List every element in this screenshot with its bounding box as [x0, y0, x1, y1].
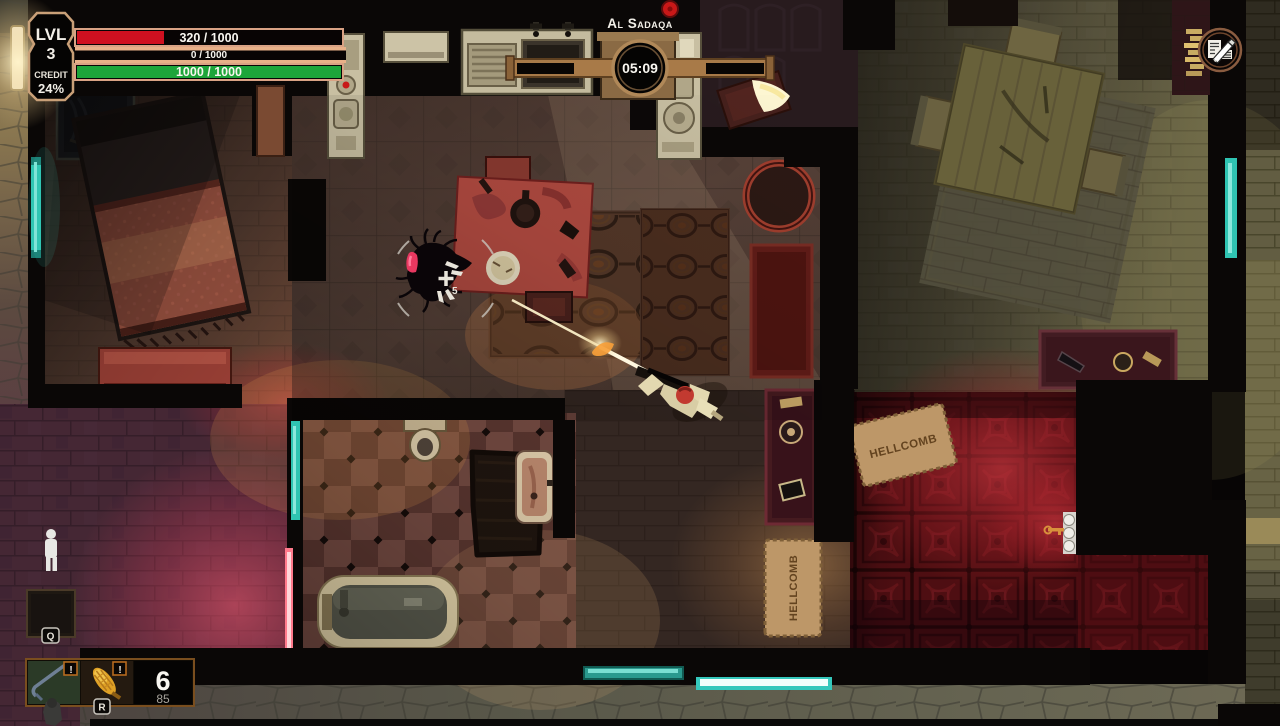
svg-text:85: 85 — [156, 692, 170, 706]
svg-text:!: ! — [69, 665, 72, 676]
svg-text:1000 / 1000: 1000 / 1000 — [176, 65, 242, 79]
svg-text:5: 5 — [452, 286, 458, 297]
svg-text:Q: Q — [47, 632, 55, 643]
svg-text:05:09: 05:09 — [622, 60, 658, 76]
svg-text:LVL: LVL — [36, 25, 67, 44]
svg-text:Al Sadaqa: Al Sadaqa — [607, 16, 673, 31]
svg-text:0 / 1000: 0 / 1000 — [191, 50, 228, 61]
svg-text:3: 3 — [47, 46, 56, 63]
svg-text:!: ! — [118, 665, 121, 676]
svg-text:CREDIT: CREDIT — [34, 70, 68, 80]
svg-text:24%: 24% — [38, 81, 64, 96]
svg-text:HELLCOMB: HELLCOMB — [788, 555, 800, 621]
svg-text:320 / 1000: 320 / 1000 — [179, 31, 238, 45]
svg-text:R: R — [98, 703, 106, 714]
